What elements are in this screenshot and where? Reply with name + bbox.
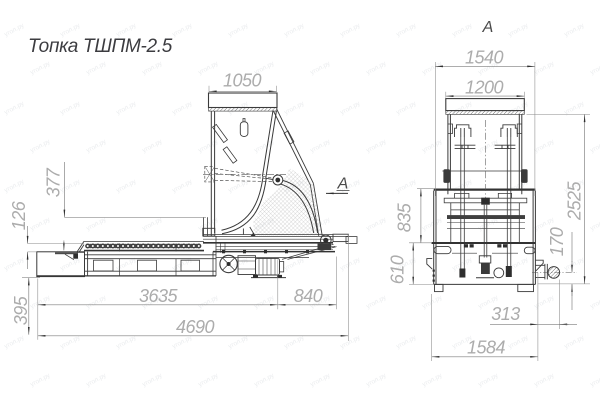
svg-text:А: А xyxy=(337,176,349,193)
svg-text:1200: 1200 xyxy=(465,78,504,98)
svg-text:1584: 1584 xyxy=(467,338,506,358)
svg-text:170: 170 xyxy=(547,227,567,256)
svg-text:313: 313 xyxy=(491,304,520,324)
svg-text:3635: 3635 xyxy=(139,286,179,306)
svg-text:835: 835 xyxy=(395,202,415,232)
svg-text:1540: 1540 xyxy=(465,48,504,68)
svg-text:А: А xyxy=(482,19,494,36)
svg-text:395: 395 xyxy=(11,295,31,325)
svg-text:1050: 1050 xyxy=(223,71,262,91)
svg-text:377: 377 xyxy=(44,167,64,197)
svg-text:Топка ТШПМ-2.5: Топка ТШПМ-2.5 xyxy=(28,36,173,57)
svg-text:840: 840 xyxy=(294,286,323,306)
svg-text:126: 126 xyxy=(9,200,29,230)
svg-text:2525: 2525 xyxy=(565,180,585,221)
svg-text:4690: 4690 xyxy=(176,317,215,337)
svg-text:610: 610 xyxy=(388,255,408,284)
